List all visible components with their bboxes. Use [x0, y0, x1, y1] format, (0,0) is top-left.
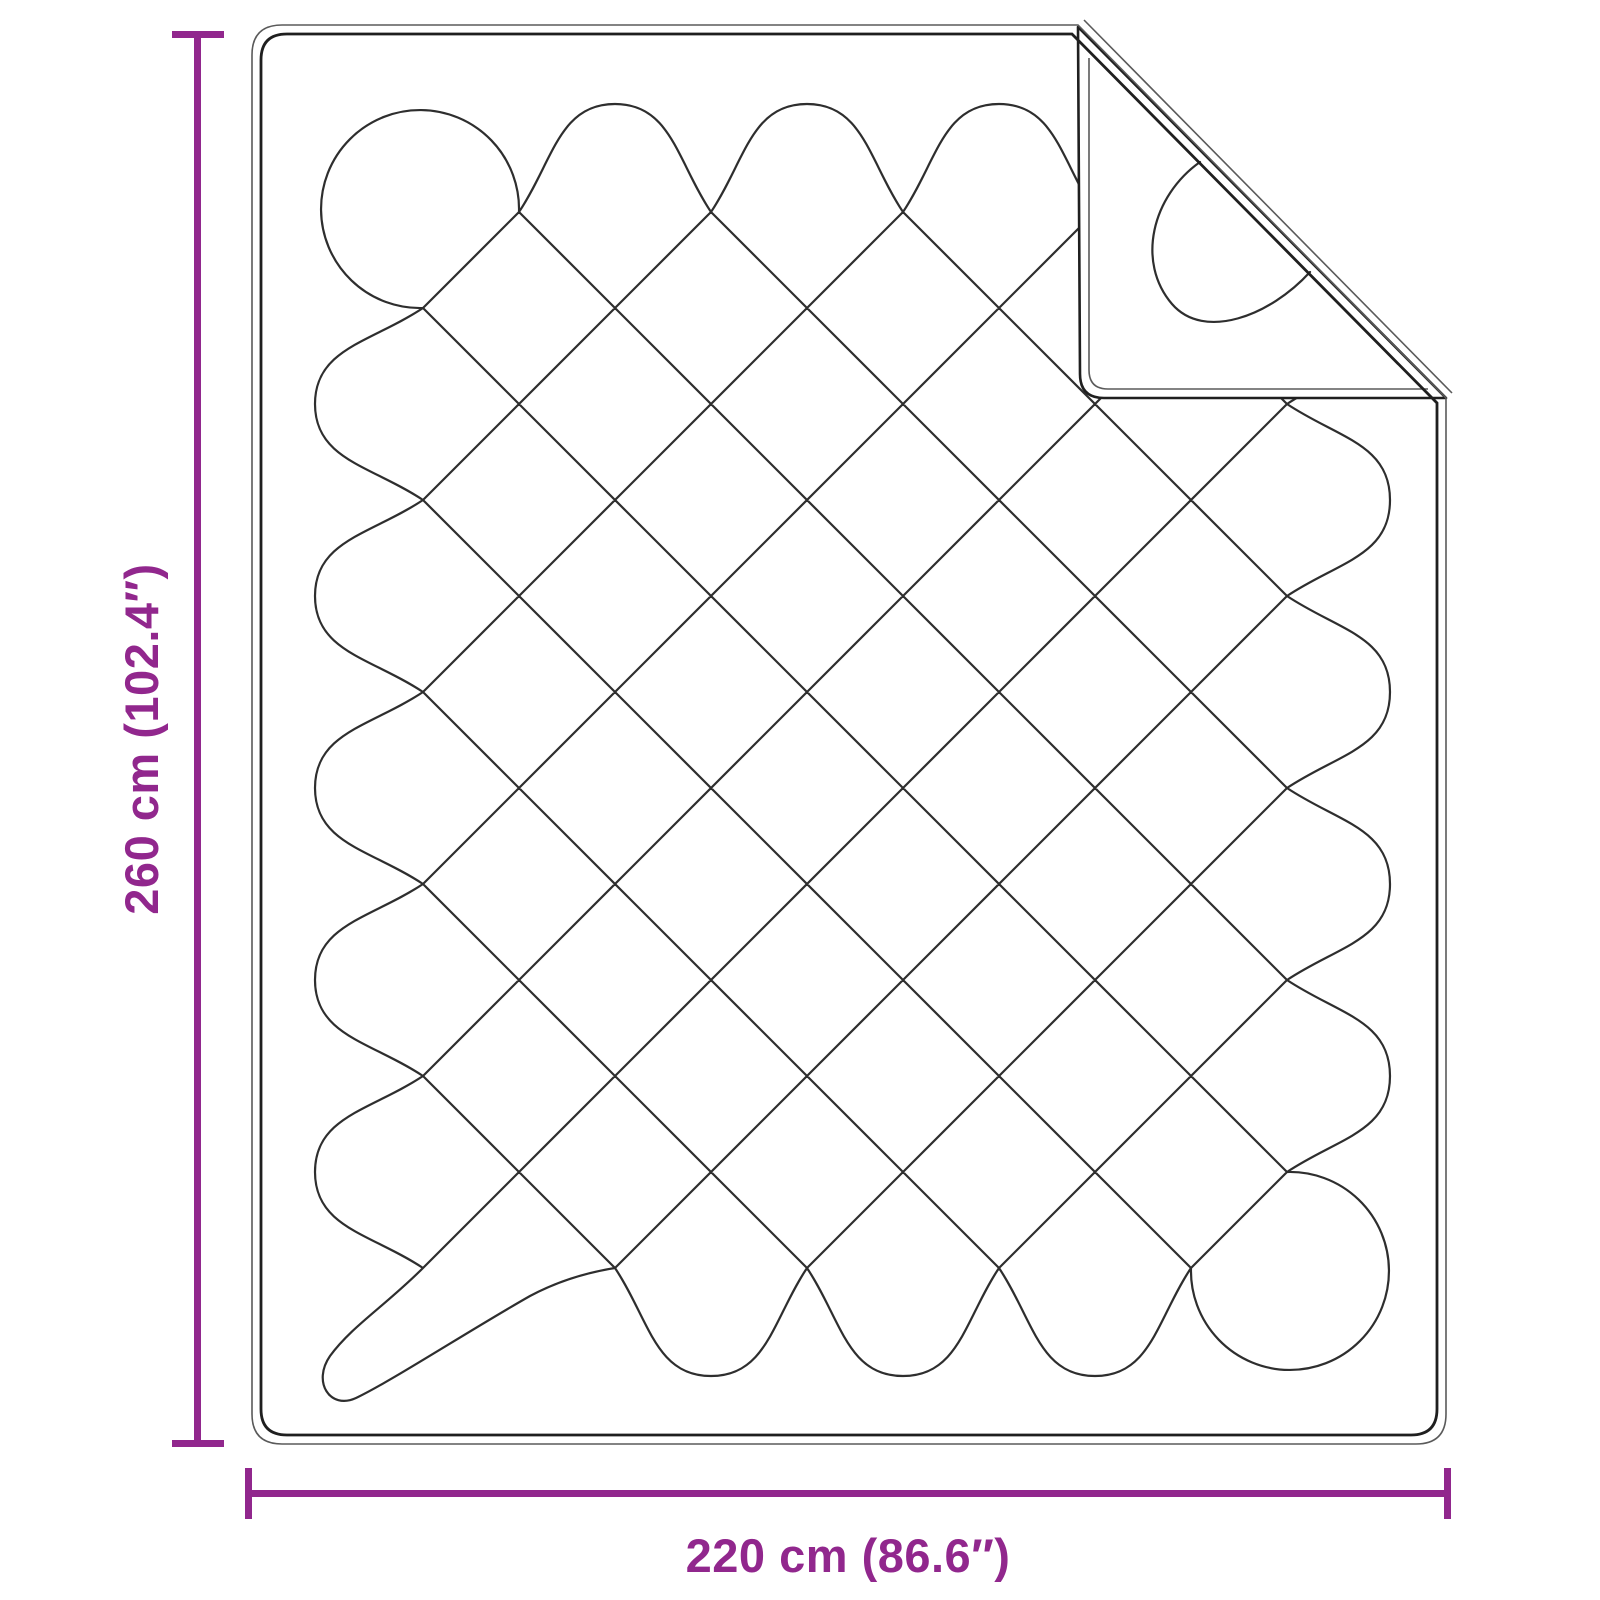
width-dimension-left-cap [245, 1468, 252, 1519]
width-dimension-label: 220 cm (86.6″) [686, 1529, 1011, 1582]
fold-flap [1078, 20, 1452, 398]
width-dimension: 220 cm (86.6″) [245, 1468, 1451, 1582]
blanket-diagram-canvas: 260 cm (102.4″) 220 cm (86.6″) [0, 0, 1600, 1600]
height-dimension-top-cap [172, 31, 224, 38]
height-dimension-line [194, 31, 201, 1447]
dimension-diagram: 260 cm (102.4″) 220 cm (86.6″) [0, 0, 1600, 1600]
height-dimension-label: 260 cm (102.4″) [115, 563, 168, 914]
height-dimension: 260 cm (102.4″) [115, 31, 224, 1447]
width-dimension-line [248, 1490, 1448, 1497]
width-dimension-right-cap [1444, 1468, 1451, 1519]
height-dimension-bottom-cap [172, 1440, 224, 1447]
